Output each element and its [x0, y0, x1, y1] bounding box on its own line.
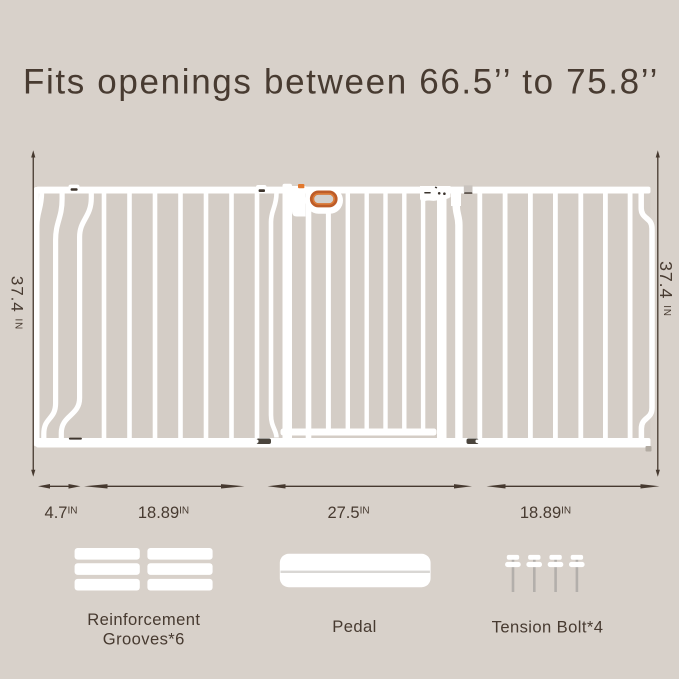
- svg-text:Tension Bolt*4: Tension Bolt*4: [492, 618, 604, 637]
- svg-text:Pedal: Pedal: [332, 617, 376, 636]
- svg-text:Reinforcement: Reinforcement: [87, 610, 200, 629]
- svg-text:Grooves*6: Grooves*6: [103, 629, 185, 648]
- svg-text:Fits openings between 66.5’’ t: Fits openings between 66.5’’ to 75.8’’: [23, 63, 659, 102]
